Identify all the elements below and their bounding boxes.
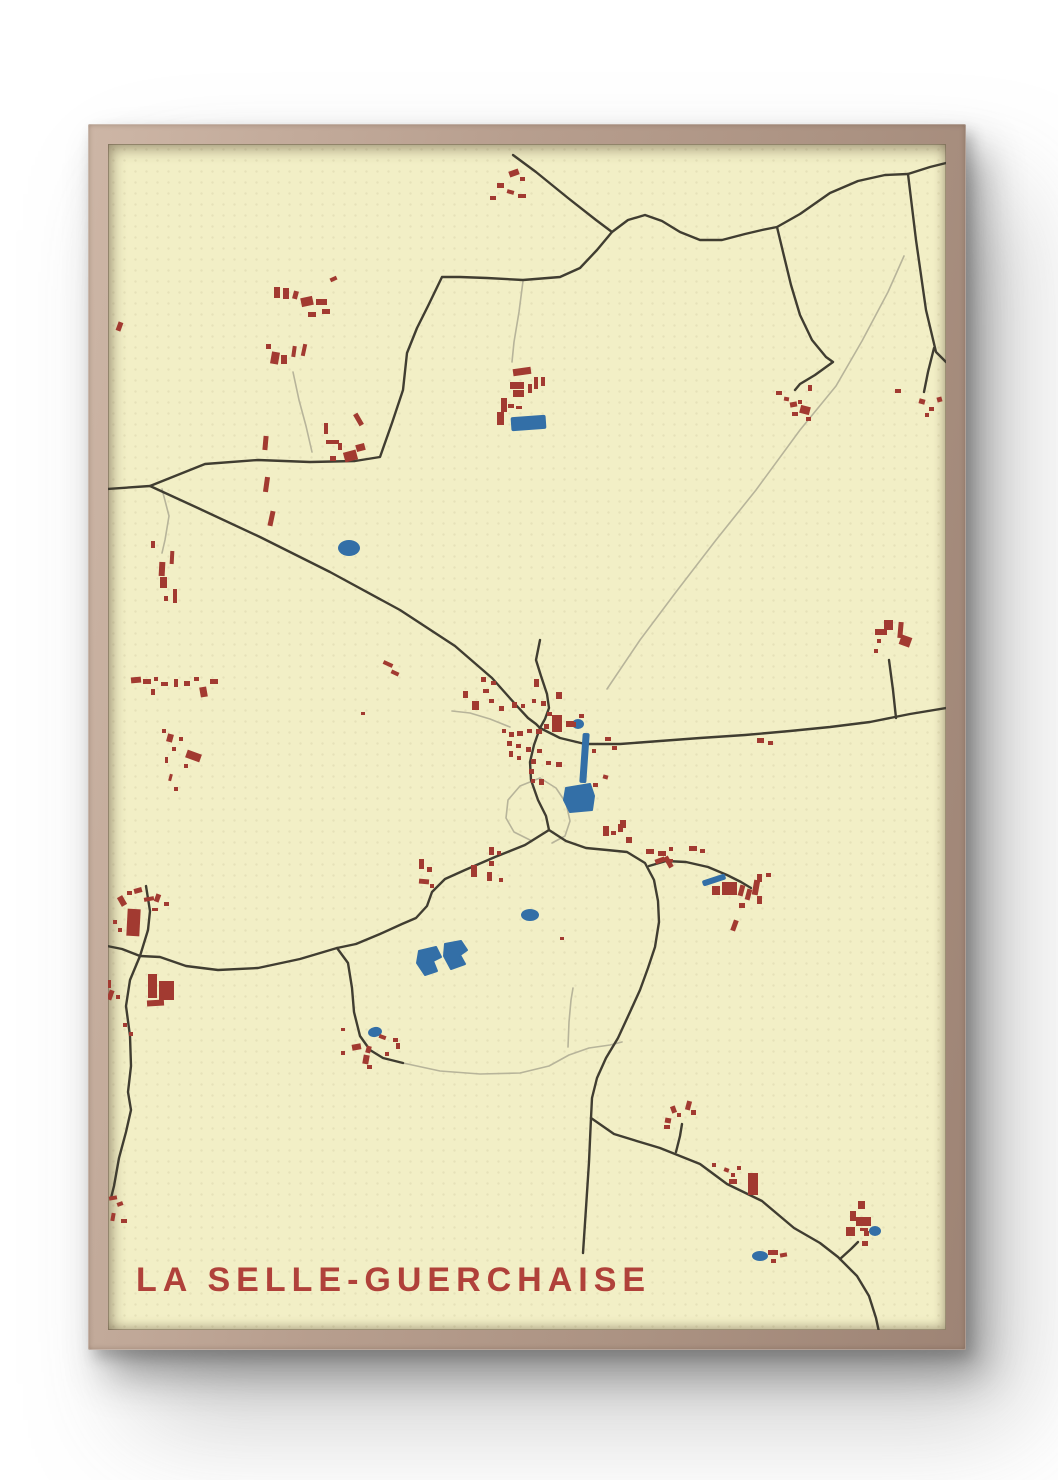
building [799,405,811,415]
building [164,596,168,601]
building [771,1259,776,1263]
building [481,677,486,682]
building [471,865,477,877]
building [185,750,202,763]
building [669,847,673,851]
building [324,423,328,434]
minor-road [607,256,904,689]
building [274,287,280,298]
building [776,391,782,395]
building [490,196,496,200]
major-road [108,163,946,489]
pond [564,784,594,812]
major-road [549,830,659,1118]
major-road [140,886,150,956]
building [267,511,275,527]
building [341,1028,345,1031]
building [757,738,764,743]
building [291,346,296,357]
building [152,908,158,911]
building [546,761,551,765]
building [539,779,544,785]
major-road [840,1242,858,1259]
building [489,861,494,866]
building [737,1166,741,1170]
pond [338,540,360,556]
building [884,620,893,630]
building [353,413,364,427]
building [148,974,157,998]
building [513,367,532,376]
building [712,1163,716,1167]
building [383,660,394,668]
building [283,288,289,299]
map-canvas [108,144,946,1330]
major-road [908,174,946,362]
building [184,681,190,686]
building [172,747,176,751]
building [658,851,666,856]
building [757,874,762,882]
building [579,714,584,718]
building [534,679,539,687]
building [677,1113,681,1117]
building [860,1228,868,1231]
building [532,699,536,703]
building [316,299,327,305]
building [547,712,552,716]
major-road [676,1124,682,1152]
building [322,309,330,314]
building [281,355,287,364]
minor-road [452,711,510,727]
building [166,733,174,742]
building [513,390,524,397]
building [685,1101,692,1111]
building [502,729,506,733]
poster-frame: LA SELLE-GUERCHAISE [88,124,966,1350]
building [162,729,166,733]
building [341,1051,345,1055]
building [517,731,523,736]
building [520,177,525,181]
building [806,417,811,421]
building [121,1219,127,1223]
building [757,896,762,904]
building [385,1052,389,1056]
building [517,756,521,760]
building [508,404,514,408]
building [427,867,432,872]
building [612,746,617,750]
building [129,1032,133,1036]
building [110,1213,115,1222]
building [116,321,124,331]
building [850,1211,856,1221]
building [603,826,609,836]
building [536,729,542,734]
building [529,769,534,774]
building [780,1252,788,1257]
building [766,873,771,877]
building [516,406,522,409]
building [127,891,132,895]
building [670,1105,677,1113]
building [379,1034,387,1040]
building [507,189,515,195]
building [846,1227,855,1236]
building [262,436,268,450]
building [768,1250,778,1255]
building [131,677,141,684]
building [144,896,155,902]
building [472,701,479,710]
building [768,741,773,745]
building [300,296,314,307]
building [722,882,737,895]
building [463,691,468,698]
building [292,290,299,299]
building [419,859,424,869]
building [393,1038,398,1042]
building [877,639,881,643]
building [798,400,802,404]
building [512,702,517,708]
pond [579,733,589,783]
building [874,649,878,653]
building [541,377,545,386]
building [491,681,496,685]
building [507,741,512,746]
building [748,1173,758,1195]
minor-road [162,489,169,553]
pond [521,909,539,921]
building [745,889,753,901]
building [508,168,519,177]
building [497,412,504,425]
building [936,396,942,402]
building [330,456,336,461]
building [918,398,925,404]
building [723,1167,729,1172]
major-roads-layer [108,155,946,1330]
building [489,699,494,703]
building [605,737,611,741]
building [499,878,503,882]
building [179,737,183,741]
building [489,847,494,855]
building [531,759,536,764]
water-layer [338,415,881,1261]
building [118,928,122,932]
building [593,783,598,787]
building [170,551,175,564]
major-road [777,227,833,390]
building [113,920,117,924]
building [419,879,429,885]
building [611,831,616,835]
building [729,1179,737,1184]
building [552,715,562,732]
building [391,669,400,676]
building [126,909,140,937]
pond [511,415,547,431]
building [194,677,199,681]
building [301,344,307,357]
building [133,887,142,894]
building [501,398,507,412]
building [154,893,161,902]
major-road [111,956,140,1198]
building [154,677,158,681]
major-road [108,830,549,970]
building [731,1173,735,1177]
building [700,849,705,853]
minor-road [568,988,573,1047]
building [338,443,342,450]
building [159,562,166,576]
building [730,919,738,931]
building [691,1110,696,1115]
building [147,1000,164,1007]
building [537,749,542,753]
major-road [540,708,946,744]
building [526,747,531,752]
building [109,1195,118,1200]
building [790,401,798,407]
building [151,689,155,695]
minor-road [293,372,312,452]
building [184,764,188,768]
pond [444,941,467,969]
building [521,704,525,708]
building [784,397,790,402]
building [712,886,720,895]
major-road [337,948,403,1063]
building [116,1201,123,1207]
building [174,787,178,791]
building [123,1023,127,1027]
building [665,1118,672,1124]
building [603,774,609,779]
building [929,407,934,411]
building [556,762,562,767]
pond [752,1251,768,1261]
building [646,849,654,854]
building [210,679,218,684]
building [117,895,127,907]
building [352,1043,362,1050]
building [266,344,271,349]
building [362,1055,369,1065]
building [664,1125,670,1129]
building [361,712,365,715]
pond [869,1226,881,1236]
minor-road [512,281,523,362]
building [689,846,697,851]
building [199,686,208,697]
building [544,724,549,729]
major-road [150,486,540,728]
building [895,389,901,393]
building [569,722,576,727]
poster-title: LA SELLE-GUERCHAISE [136,1261,651,1300]
building [510,382,524,389]
building [367,1065,372,1069]
building [738,885,746,897]
building [527,729,532,733]
building [556,692,562,699]
building [263,477,270,493]
building [487,872,492,881]
building [739,903,745,908]
building [168,774,173,782]
building [160,577,167,588]
building [925,413,929,417]
building [509,732,514,737]
building [173,589,177,603]
building [792,412,798,416]
major-road [513,155,612,232]
building [497,183,504,188]
building [875,629,887,635]
building [509,751,513,757]
map-poster-paper: LA SELLE-GUERCHAISE [108,144,946,1330]
building [620,820,626,828]
building [108,980,111,988]
building [528,384,532,393]
building [808,385,812,391]
building [864,1231,869,1236]
building [862,1241,868,1246]
pond [417,947,441,975]
major-road [924,348,934,392]
building [326,440,339,444]
building [497,851,501,855]
building [174,679,178,687]
building [858,1201,865,1209]
building [270,351,280,364]
building [161,682,168,686]
building [308,312,316,317]
minor-road [403,1042,622,1074]
building [116,995,120,999]
building [159,981,174,1000]
building [626,837,632,843]
building [108,989,115,1000]
building [355,443,366,452]
building [560,937,564,940]
building [534,377,538,389]
building [396,1043,400,1049]
building [329,276,337,283]
major-road [583,1118,591,1253]
building [430,884,434,888]
building [499,706,504,711]
building [592,749,596,753]
building [483,689,489,693]
building [143,679,151,684]
minor-roads-layer [162,256,904,1074]
building [151,541,155,548]
building [518,194,526,198]
major-road [889,660,896,718]
building [856,1217,871,1226]
building [541,701,546,706]
building [165,757,168,763]
building [531,779,535,783]
building [164,902,169,906]
building [516,744,521,748]
